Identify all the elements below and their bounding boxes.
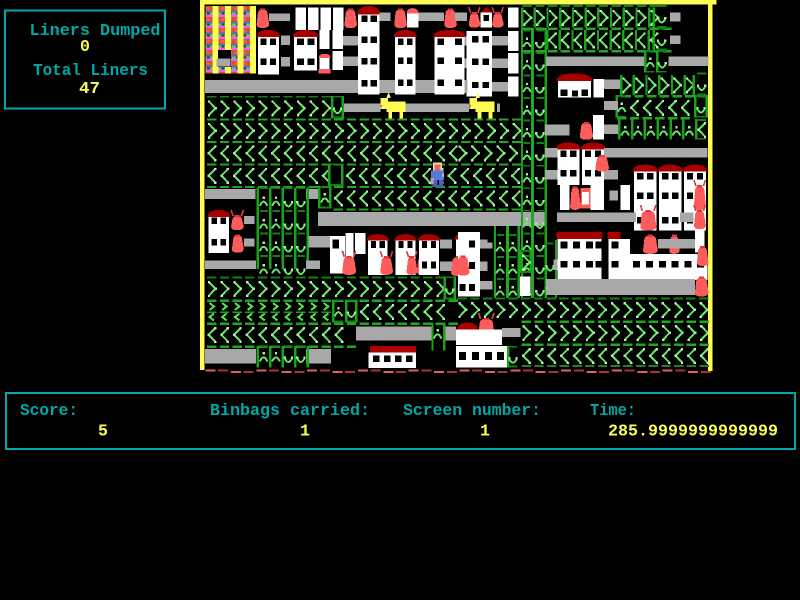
svg-text:Binbags carried:: Binbags carried:: [210, 401, 370, 420]
svg-text:1: 1: [480, 422, 490, 441]
svg-text:Time:: Time:: [590, 401, 636, 420]
svg-text:1: 1: [300, 422, 310, 441]
svg-text:5: 5: [98, 422, 108, 441]
svg-text:Liners Dumped: Liners Dumped: [30, 21, 161, 40]
svg-text:0: 0: [80, 37, 90, 56]
svg-text:Total Liners: Total Liners: [33, 61, 148, 80]
svg-text:47: 47: [79, 79, 100, 98]
svg-text:Screen number:: Screen number:: [403, 401, 541, 420]
svg-text:285.9999999999999: 285.9999999999999: [608, 422, 778, 441]
svg-text:Score:: Score:: [20, 401, 78, 420]
